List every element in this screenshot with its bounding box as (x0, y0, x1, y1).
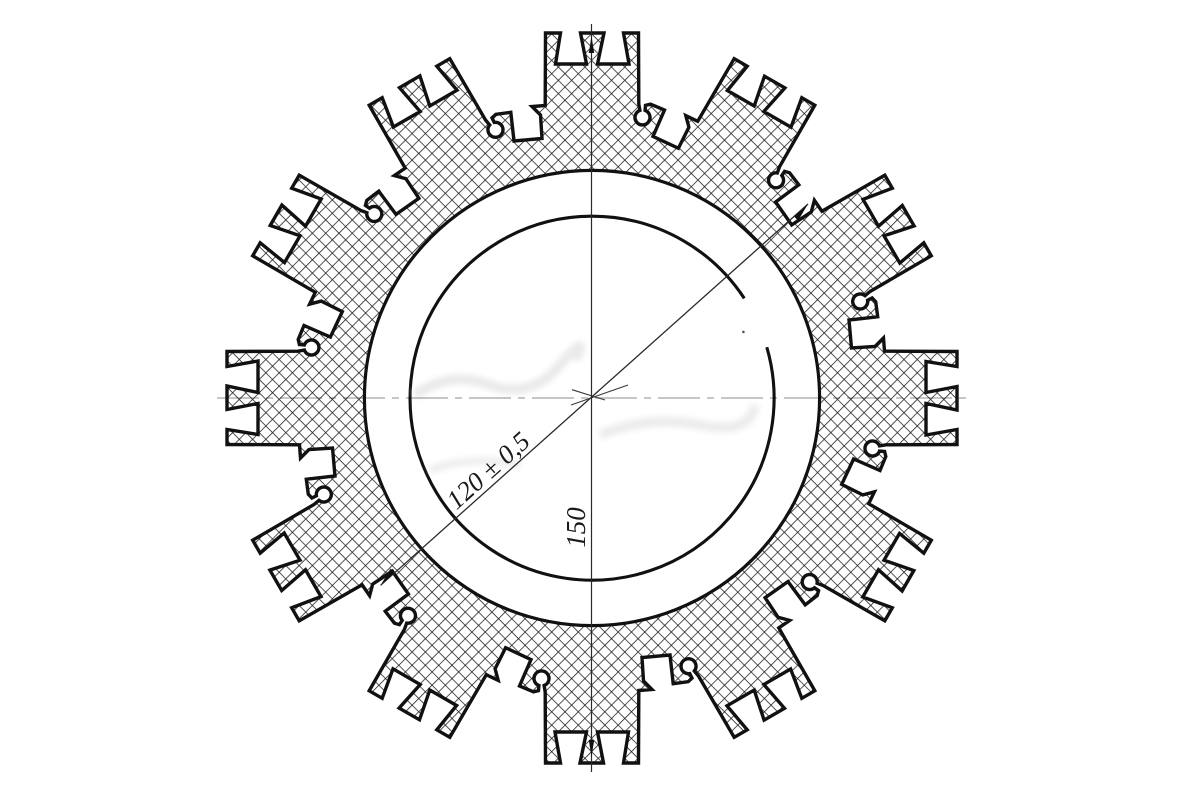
svg-text:150: 150 (561, 507, 591, 548)
